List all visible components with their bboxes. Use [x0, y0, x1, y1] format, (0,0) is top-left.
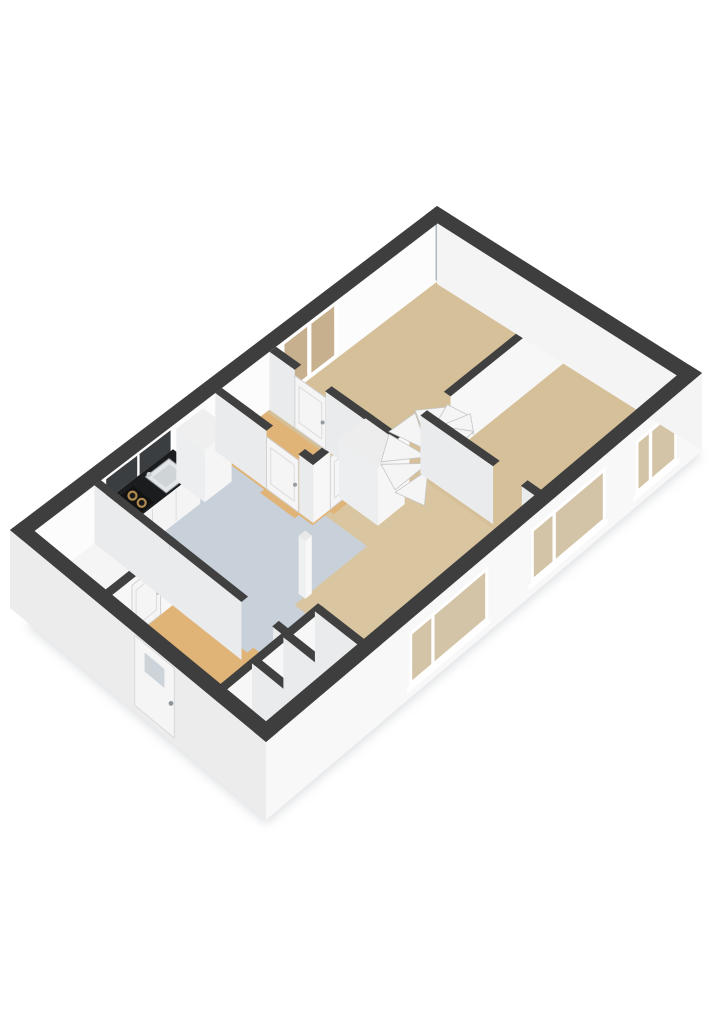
burner-4	[138, 499, 146, 507]
floorplan-3d-canvas	[0, 0, 724, 1024]
column-front	[305, 536, 312, 599]
faucet	[147, 472, 152, 477]
kitchen-window-mullion	[137, 454, 139, 477]
hall-west-door-handle	[293, 483, 297, 487]
burner-3	[129, 492, 137, 500]
east-window-glass-left	[639, 434, 649, 489]
column-side	[299, 536, 306, 599]
floorplan-scene	[10, 206, 702, 824]
front-door-handle	[169, 701, 174, 706]
sliding-door-mullion	[307, 324, 311, 376]
cabinet-seam-2	[176, 490, 177, 521]
bedroom-door-handle	[321, 421, 325, 425]
wall-hall-west-lower	[299, 455, 313, 523]
floorplan-page	[0, 0, 724, 1024]
